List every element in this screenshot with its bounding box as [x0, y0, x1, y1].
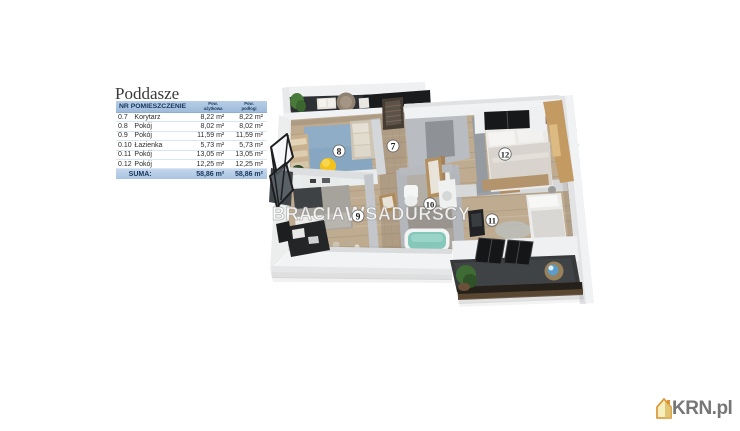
- svg-text:12: 12: [501, 150, 510, 160]
- svg-text:8: 8: [337, 148, 342, 158]
- svg-text:7: 7: [391, 143, 396, 153]
- svg-text:11: 11: [488, 216, 496, 226]
- svg-text:10: 10: [426, 200, 435, 210]
- svg-text:9: 9: [356, 213, 361, 223]
